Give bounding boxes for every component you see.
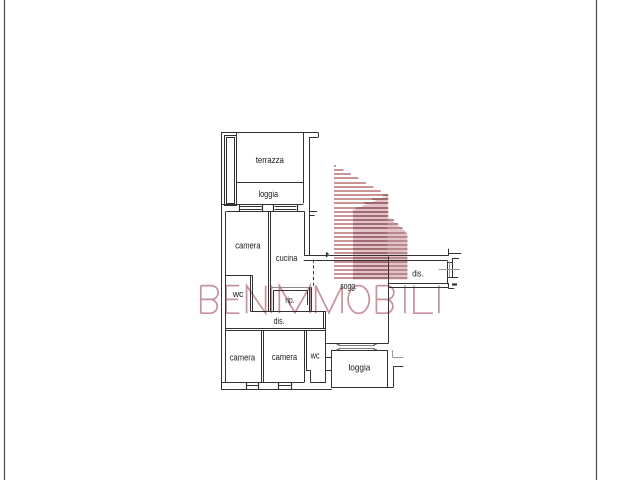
- svg-text:camera: camera: [235, 240, 261, 251]
- svg-text:cucina: cucina: [276, 253, 298, 264]
- svg-text:wc: wc: [310, 351, 320, 362]
- svg-text:terrazza: terrazza: [256, 155, 285, 166]
- svg-text:camera: camera: [272, 352, 298, 363]
- svg-text:sogg.: sogg.: [340, 281, 356, 292]
- svg-text:loggia: loggia: [258, 189, 278, 200]
- svg-text:dis.: dis.: [412, 269, 423, 280]
- svg-text:camera: camera: [230, 353, 256, 364]
- svg-text:loggia: loggia: [348, 363, 371, 374]
- svg-text:wc: wc: [232, 289, 244, 300]
- svg-text:dis.: dis.: [274, 316, 285, 327]
- svg-text:rip.: rip.: [285, 295, 294, 306]
